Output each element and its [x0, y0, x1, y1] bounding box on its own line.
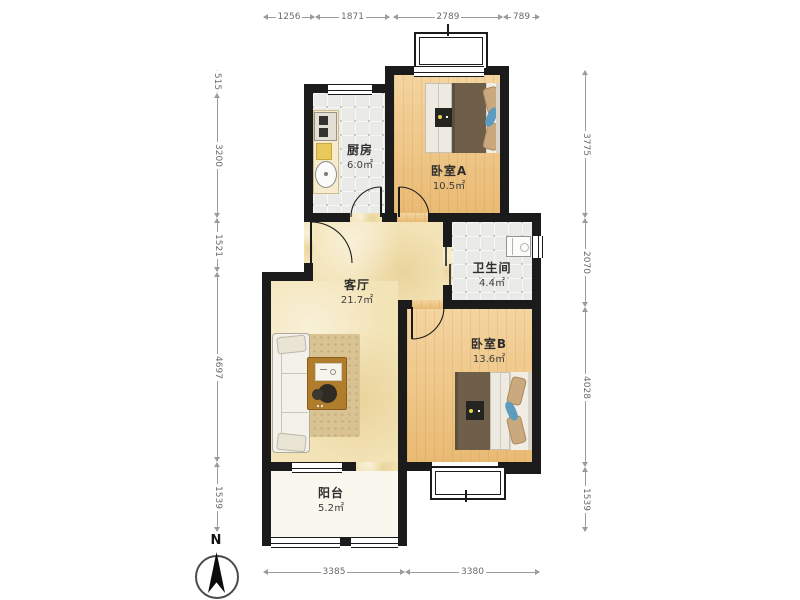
north-label: N — [205, 533, 227, 548]
door-threshold — [350, 213, 382, 222]
wall-segment — [262, 272, 271, 546]
sofa-pillow — [276, 335, 307, 355]
door-threshold — [304, 222, 313, 263]
dimension-top: 2789 — [393, 10, 503, 24]
wall-segment — [532, 213, 541, 236]
drain — [324, 172, 328, 176]
wall-segment — [304, 84, 313, 222]
dimension-left: 4697 — [210, 272, 224, 462]
room-label-living-room: 客厅 21.7㎡ — [312, 278, 402, 307]
room-label-balcony: 阳台 5.2㎡ — [286, 486, 376, 515]
dimension-top: 789 — [503, 10, 540, 24]
dimension-label: 1539 — [213, 484, 222, 511]
living-balcony-window — [292, 462, 342, 473]
door-threshold — [412, 300, 443, 309]
dimension-label: 1256 — [276, 13, 303, 22]
dimension-label: 2070 — [581, 249, 590, 276]
dimension-left: 515 — [210, 70, 224, 93]
dimension-label: 3200 — [213, 142, 222, 169]
sofa — [272, 333, 310, 453]
balcony-window — [351, 537, 398, 548]
wall-segment — [382, 213, 397, 222]
balcony-opening — [356, 462, 398, 471]
window-tick — [465, 490, 467, 502]
dimension-label: 1521 — [213, 232, 222, 259]
dimension-top: 1871 — [315, 10, 390, 24]
bedroom-b-bay-window — [430, 466, 506, 500]
dimension-left: 1539 — [210, 462, 224, 532]
dimension-label: 3380 — [459, 568, 486, 577]
bed-b — [455, 372, 532, 450]
wall-segment — [340, 537, 351, 546]
burner — [319, 128, 328, 137]
stove — [314, 112, 337, 141]
bathroom-window — [532, 236, 543, 258]
dimension-label: 3385 — [321, 568, 348, 577]
burner — [319, 116, 328, 125]
balcony-window — [271, 537, 340, 548]
dimension-label: 789 — [511, 13, 532, 22]
dimension-label: 1539 — [581, 486, 590, 513]
wall-segment — [443, 300, 541, 309]
dimension-label: 2789 — [435, 13, 462, 22]
wall-segment — [398, 462, 432, 471]
bed-a — [425, 83, 500, 153]
dimension-label: 515 — [213, 71, 222, 92]
coffee-table — [307, 357, 347, 410]
room-label-kitchen: 厨房 6.0㎡ — [315, 143, 405, 172]
tv — [466, 401, 484, 420]
wall-segment — [500, 66, 509, 222]
dimension-right: 1539 — [578, 467, 592, 532]
bedroom-a-bay-window — [414, 32, 488, 70]
dimension-label: 1871 — [339, 13, 366, 22]
sofa-pillow — [276, 433, 307, 453]
wall-segment — [342, 462, 356, 471]
room-label-bedroom-a: 卧室A 10.5㎡ — [404, 164, 494, 193]
dimension-label: 4697 — [213, 354, 222, 381]
room-label-bedroom-b: 卧室B 13.6㎡ — [444, 337, 534, 366]
dimension-right: 2070 — [578, 218, 592, 307]
bedroom-a-window — [414, 66, 484, 77]
door-threshold — [397, 213, 428, 222]
dimension-left: 1521 — [210, 218, 224, 272]
washbasin — [506, 236, 531, 257]
dimension-bottom: 3380 — [405, 565, 540, 579]
dimension-top: 1256 — [263, 10, 315, 24]
dimension-bottom: 3385 — [263, 565, 405, 579]
dimension-label: 4028 — [581, 374, 590, 401]
wall-segment — [262, 462, 292, 471]
wall-segment — [443, 222, 452, 247]
wall-segment — [428, 213, 541, 222]
dimension-label: 3775 — [581, 131, 590, 158]
window-tick — [447, 24, 449, 36]
wall-segment — [398, 300, 407, 546]
teapot — [312, 389, 323, 400]
bed-blanket — [452, 83, 486, 153]
wall-segment — [304, 213, 350, 222]
kitchen-window — [328, 84, 372, 95]
room-label-bathroom: 卫生间 4.4㎡ — [447, 261, 537, 290]
dimension-left: 3200 — [210, 93, 224, 218]
floor-plan: 厨房 6.0㎡ 卧室A 10.5㎡ 卫生间 4.4㎡ 客厅 21.7㎡ 卧室B … — [0, 0, 800, 600]
dimension-right: 4028 — [578, 307, 592, 467]
dimension-right: 3775 — [578, 70, 592, 218]
tray — [315, 363, 342, 381]
tv — [435, 108, 452, 127]
